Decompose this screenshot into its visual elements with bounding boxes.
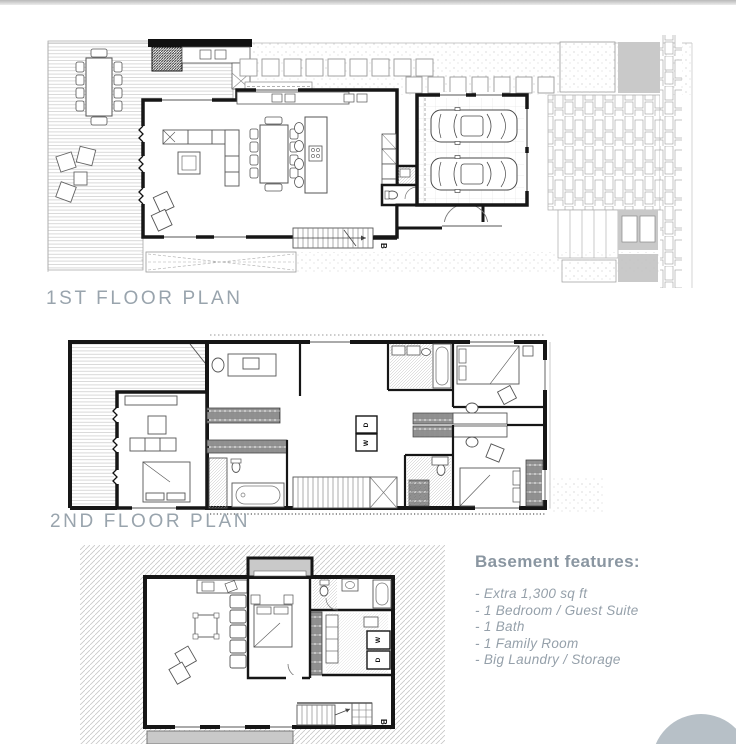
- master-closet: [207, 408, 280, 423]
- second-bathroom: [405, 455, 453, 508]
- feature-item: - Big Laundry / Storage: [475, 652, 725, 669]
- laundry-room: W D: [322, 613, 393, 675]
- stair-label-b: B: [379, 243, 388, 249]
- page: B: [0, 0, 736, 744]
- basement-washer-label: W: [375, 636, 382, 643]
- second-floor-plan: D W: [70, 335, 605, 514]
- outdoor-kitchen-wall: [148, 39, 252, 47]
- feature-item: - Extra 1,300 sq ft: [475, 586, 725, 603]
- basement-dryer-label: D: [375, 657, 382, 662]
- dryer-label: D: [363, 422, 370, 427]
- washer-dryer: D W: [356, 416, 377, 451]
- basement-features-heading: Basement features:: [475, 552, 725, 572]
- second-floor-plan-label: 2ND FLOOR PLAN: [50, 511, 250, 533]
- stone-driveway: [548, 95, 660, 210]
- basement-features: Basement features: - Extra 1,300 sq ft -…: [475, 552, 725, 669]
- first-floor-plan: B: [48, 35, 692, 288]
- basement-plan: W D B: [80, 545, 445, 744]
- powder-room: [382, 185, 417, 205]
- page-number: 4: [685, 731, 716, 744]
- feature-item: - 1 Bedroom / Guest Suite: [475, 603, 725, 620]
- guest-closet: [310, 612, 322, 675]
- washer-label: W: [363, 439, 370, 446]
- first-floor-plan-label: 1ST FLOOR PLAN: [46, 288, 243, 310]
- stairs-second-floor: [293, 477, 397, 508]
- hall-bathroom: [388, 342, 453, 390]
- master-bedroom: [113, 392, 207, 511]
- feature-item: - 1 Family Room: [475, 636, 725, 653]
- car-1: [431, 108, 517, 145]
- garage: [417, 92, 530, 205]
- stone-path: [660, 35, 682, 288]
- basement-stair-label: B: [379, 719, 388, 725]
- car-2: [431, 156, 517, 193]
- feature-item: - 1 Bath: [475, 619, 725, 636]
- basement-features-list: - Extra 1,300 sq ft - 1 Bedroom / Guest …: [475, 586, 725, 669]
